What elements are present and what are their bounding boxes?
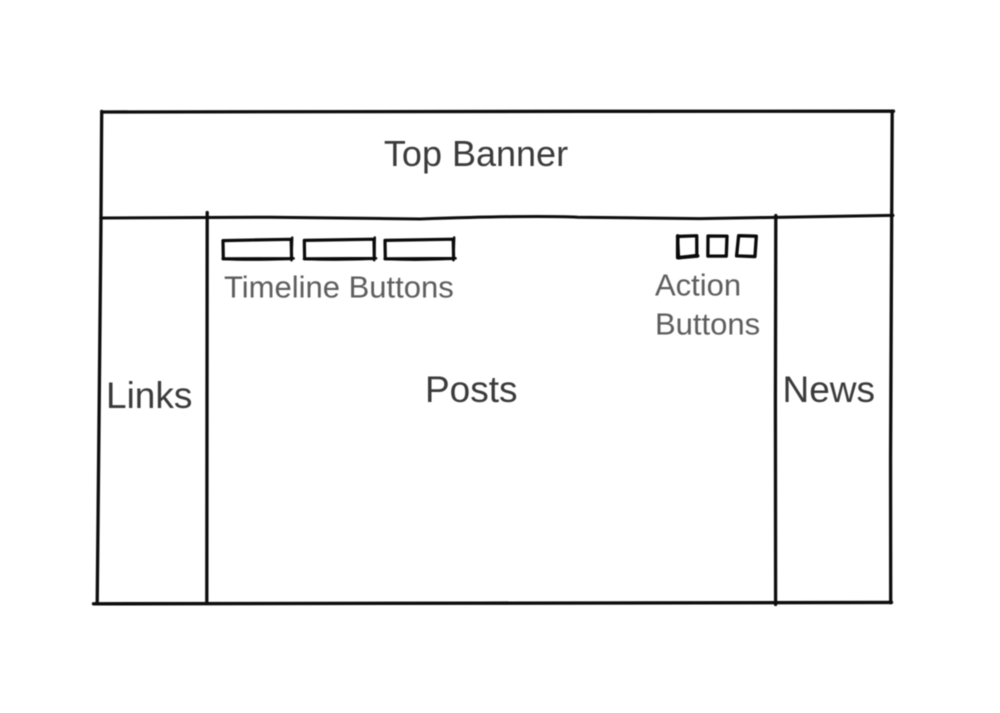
svg-text:Action: Action [655,268,741,303]
svg-text:Top Banner: Top Banner [384,133,568,174]
svg-text:Buttons: Buttons [655,306,760,341]
svg-text:News: News [783,369,876,410]
svg-text:Links: Links [106,375,192,416]
svg-text:Posts: Posts [425,369,518,410]
svg-text:Timeline Buttons: Timeline Buttons [224,270,454,305]
